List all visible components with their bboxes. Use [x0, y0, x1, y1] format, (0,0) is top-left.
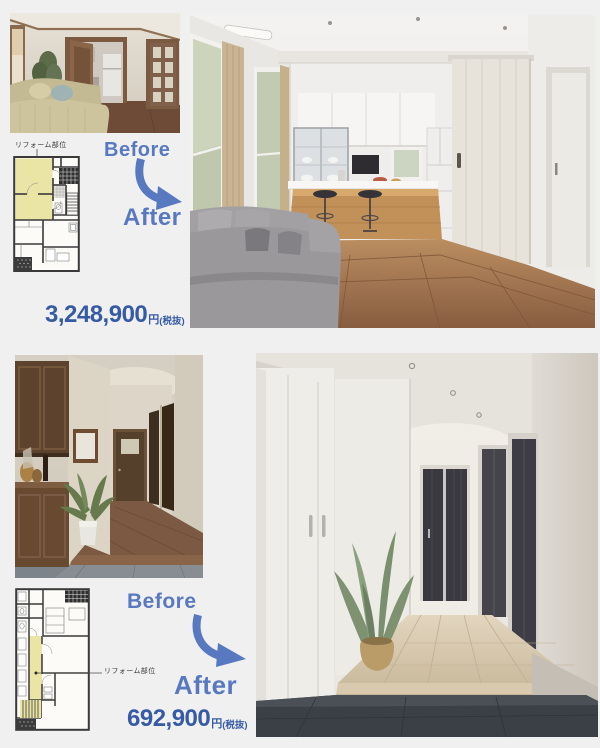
end-door: [113, 429, 147, 501]
closet: [256, 361, 334, 701]
wall-frame: [73, 429, 98, 463]
after-label: After: [123, 205, 182, 231]
stairs: [20, 700, 41, 718]
curved-arrow-icon: [188, 612, 248, 668]
side-door-2: [508, 433, 538, 651]
reform-highlight: [16, 159, 53, 221]
entrance-hatch: [15, 257, 32, 270]
sliding-door: [448, 55, 534, 264]
reform-highlight: [29, 636, 42, 700]
sofa: [10, 78, 109, 133]
price-amount: 3,248,900: [45, 303, 147, 327]
built-in-oven: [352, 155, 379, 174]
price-tax-note: (税抜): [222, 721, 247, 731]
sofa: [190, 206, 341, 328]
price-tax-note: (税抜): [159, 317, 184, 327]
floor-plan-living: [13, 149, 80, 272]
stairs: [67, 193, 78, 215]
lower-cabinet: [15, 482, 69, 567]
step-edge: [70, 555, 203, 565]
before-photo-living-room: [10, 13, 180, 133]
price-currency: 円: [211, 719, 222, 730]
renovation-flyer-page: リフォーム部位: [0, 0, 600, 748]
price: 3,248,900 円 (税抜): [45, 303, 185, 327]
entrance-hatch: [17, 719, 36, 729]
after-photo-living-room: [190, 15, 595, 328]
before-label: Before: [127, 590, 197, 613]
before-photo-hallway: [15, 355, 203, 578]
price-currency: 円: [148, 315, 159, 326]
side-doors: [149, 403, 174, 511]
reform-area-label: リフォーム部位: [104, 666, 156, 676]
bath-tile: [59, 168, 78, 184]
price-amount: 692,900: [127, 707, 210, 731]
bath-tile: [65, 591, 88, 603]
right-door: [546, 67, 590, 267]
after-photo-hallway: [256, 353, 598, 737]
after-label: After: [174, 671, 237, 700]
floor-plan-hallway: [15, 588, 102, 731]
kitchen-window: [391, 147, 422, 180]
washroom-tile: [54, 186, 65, 198]
side-door-1: [478, 445, 508, 617]
tile-floor: [256, 695, 598, 737]
end-door: [420, 465, 470, 601]
glass-panel-door: [146, 39, 179, 109]
price: 692,900 円 (税抜): [127, 707, 248, 731]
upper-cabinet: [15, 361, 69, 457]
